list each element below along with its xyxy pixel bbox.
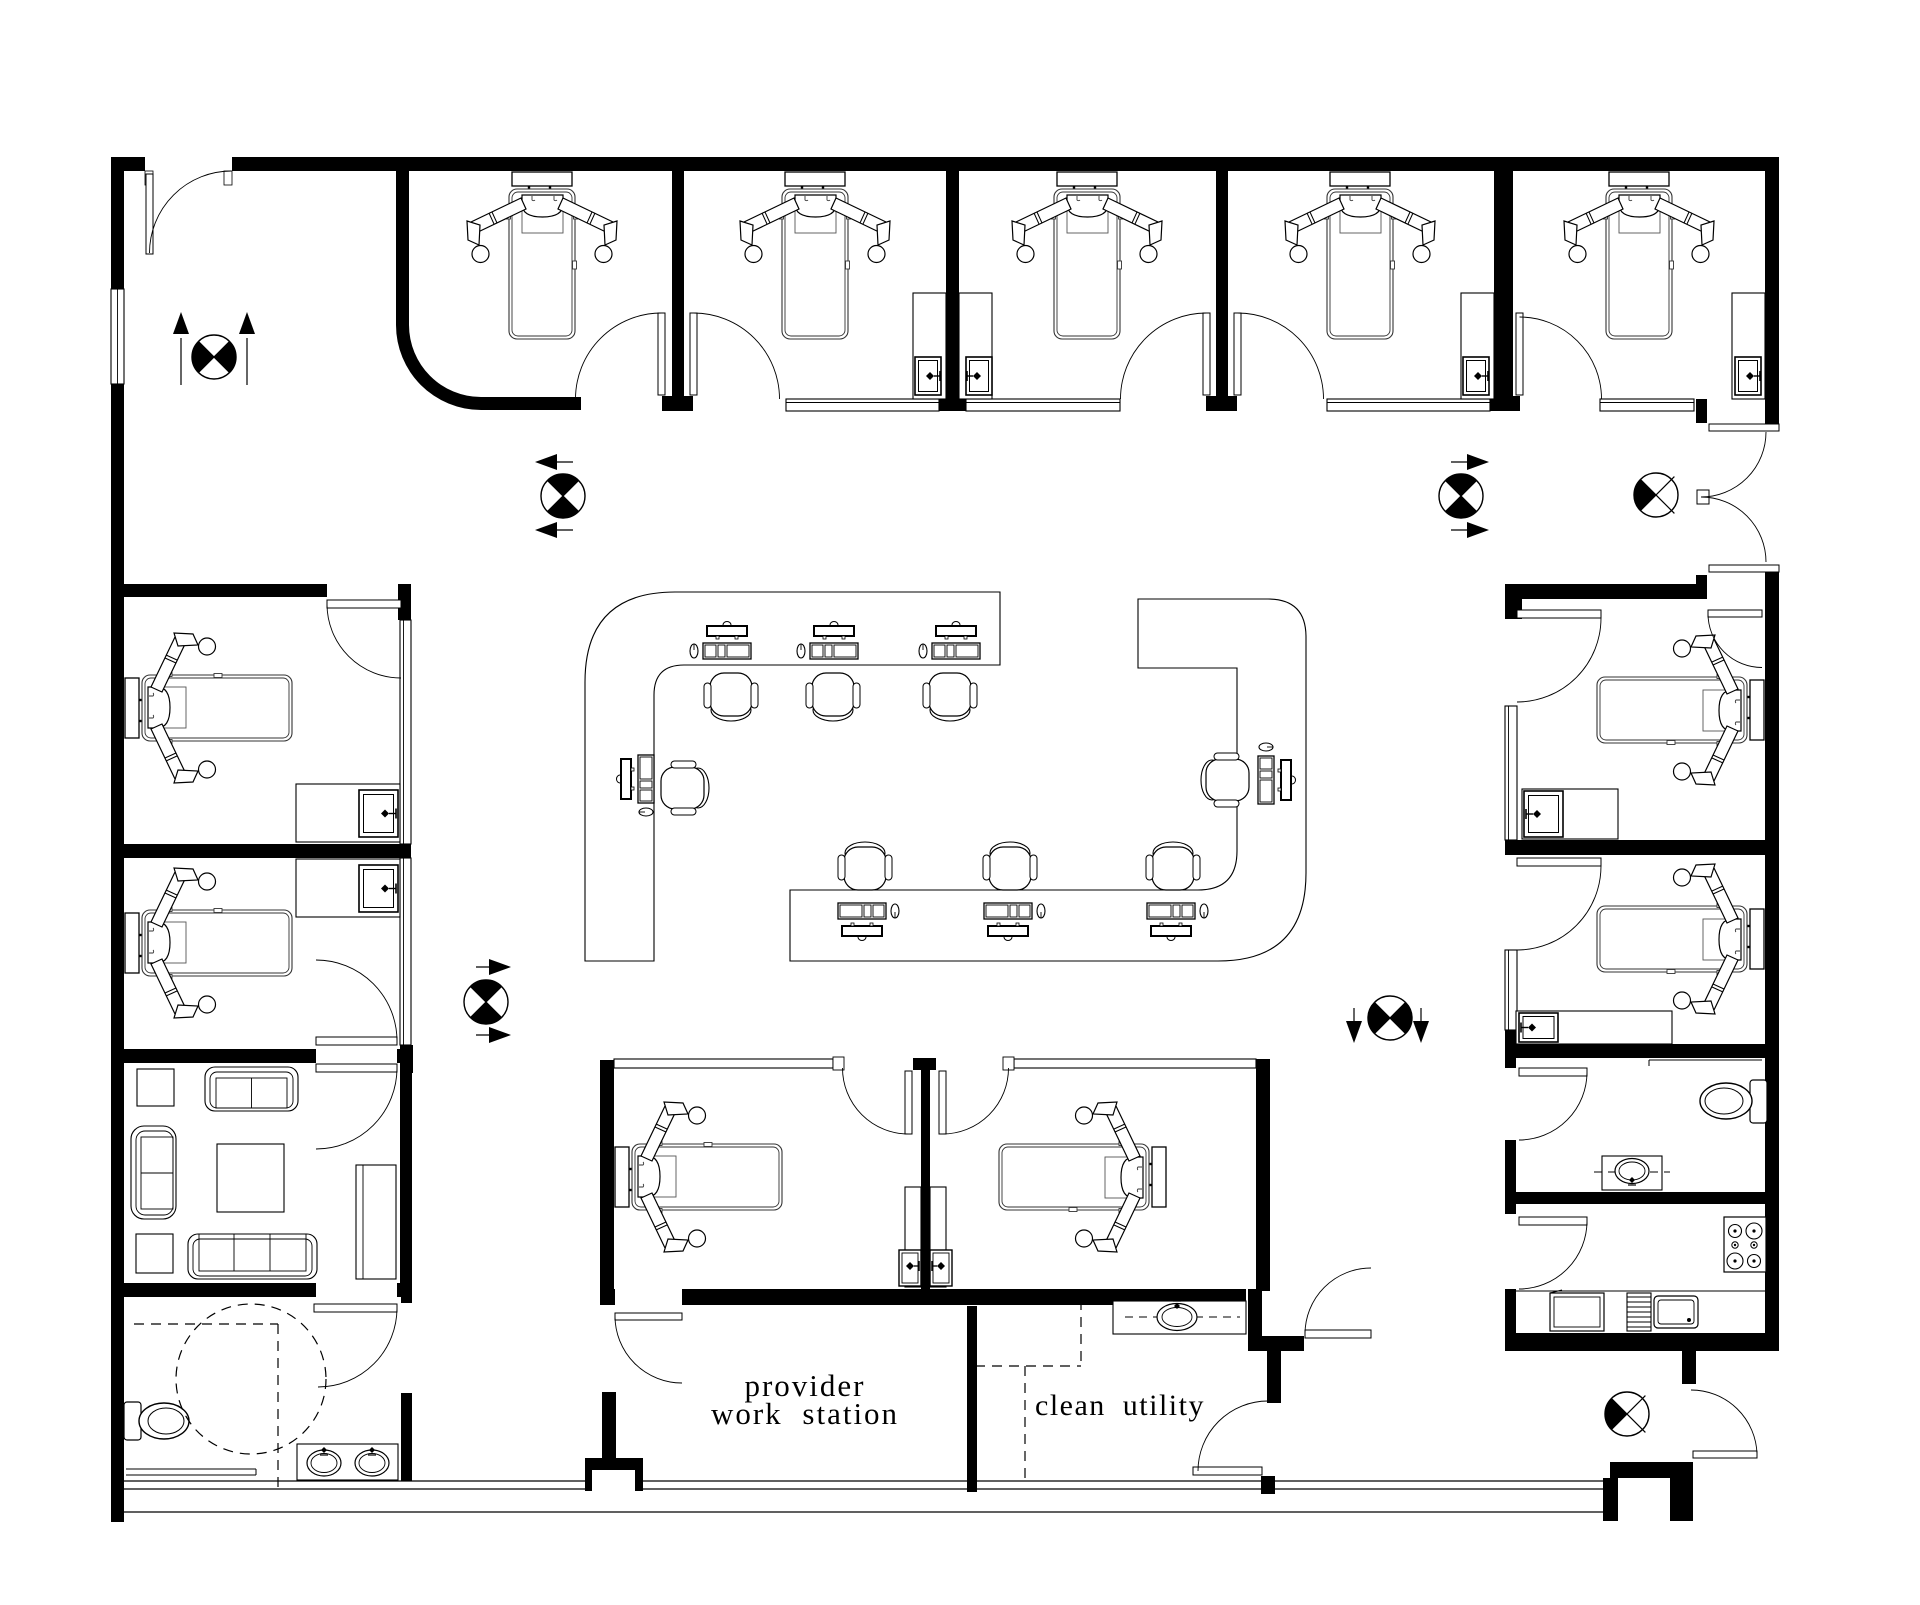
svg-text:work station: work station bbox=[711, 1396, 899, 1431]
svg-text:clean utility: clean utility bbox=[1035, 1389, 1205, 1422]
